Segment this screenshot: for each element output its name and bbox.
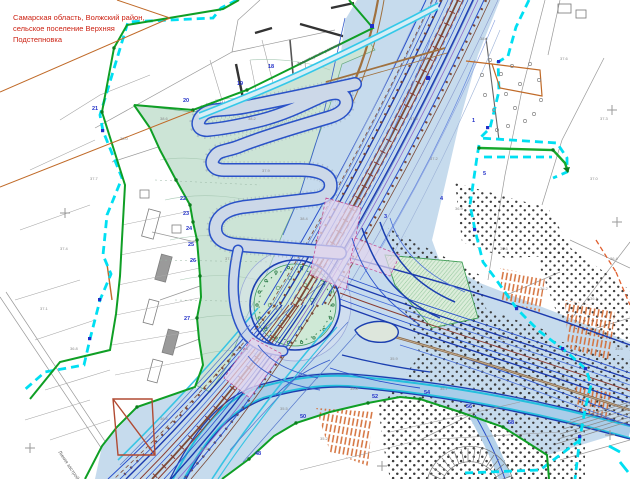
svg-text:36.3: 36.3	[200, 446, 209, 451]
svg-text:36.5: 36.5	[160, 416, 169, 421]
svg-text:23: 23	[183, 211, 189, 217]
svg-text:50: 50	[300, 414, 306, 420]
svg-text:21: 21	[92, 106, 98, 112]
svg-text:36.0: 36.0	[500, 336, 509, 341]
svg-text:36.6: 36.6	[500, 246, 509, 251]
svg-text:36.4: 36.4	[610, 256, 619, 261]
svg-text:37.4: 37.4	[60, 246, 69, 251]
svg-text:35.6: 35.6	[615, 346, 624, 351]
svg-text:25: 25	[188, 242, 194, 248]
svg-text:37.5: 37.5	[410, 116, 419, 121]
svg-text:24: 24	[186, 226, 193, 232]
svg-text:56: 56	[466, 404, 472, 410]
svg-text:38.2: 38.2	[248, 116, 257, 121]
svg-text:37.3: 37.3	[600, 116, 609, 121]
svg-text:52: 52	[372, 394, 378, 400]
svg-text:37.8: 37.8	[420, 56, 429, 61]
svg-text:37.9: 37.9	[262, 168, 271, 173]
svg-text:35.2: 35.2	[320, 436, 329, 441]
svg-text:48: 48	[255, 451, 261, 457]
svg-text:сельское поселение Верхняя: сельское поселение Верхняя	[13, 24, 115, 33]
svg-text:37.6: 37.6	[560, 56, 569, 61]
svg-text:37.6: 37.6	[225, 256, 234, 261]
svg-text:38.4: 38.4	[300, 216, 309, 221]
svg-text:38.1: 38.1	[275, 306, 284, 311]
svg-text:37.1: 37.1	[40, 306, 49, 311]
svg-text:37.7: 37.7	[90, 176, 99, 181]
svg-text:18: 18	[268, 64, 274, 70]
svg-text:26: 26	[190, 258, 196, 264]
svg-text:38.0: 38.0	[120, 136, 129, 141]
svg-text:35.8: 35.8	[350, 386, 359, 391]
svg-text:37.0: 37.0	[590, 176, 599, 181]
svg-text:Самарская область, Волжский ра: Самарская область, Волжский район,	[13, 13, 144, 22]
svg-text:35.7: 35.7	[440, 386, 449, 391]
svg-text:5: 5	[483, 171, 486, 177]
svg-text:38.6: 38.6	[160, 116, 169, 121]
svg-text:Подстепновка: Подстепновка	[13, 35, 63, 44]
svg-text:35.5: 35.5	[280, 406, 289, 411]
svg-text:1: 1	[472, 118, 475, 124]
svg-text:38.1: 38.1	[480, 36, 489, 41]
svg-text:36.8: 36.8	[70, 346, 79, 351]
svg-text:35.9: 35.9	[390, 356, 399, 361]
svg-text:58: 58	[508, 420, 514, 426]
svg-text:54: 54	[424, 390, 431, 396]
svg-text:20: 20	[183, 98, 189, 104]
svg-text:35.4: 35.4	[560, 376, 569, 381]
svg-text:37.8: 37.8	[240, 346, 249, 351]
svg-text:27: 27	[184, 316, 190, 322]
svg-text:19: 19	[237, 81, 243, 87]
svg-text:36.2: 36.2	[540, 286, 549, 291]
svg-text:36.9: 36.9	[455, 206, 464, 211]
svg-text:36.1: 36.1	[590, 296, 599, 301]
svg-text:22: 22	[180, 196, 186, 202]
svg-text:3: 3	[384, 214, 387, 220]
svg-text:37.2: 37.2	[430, 156, 439, 161]
